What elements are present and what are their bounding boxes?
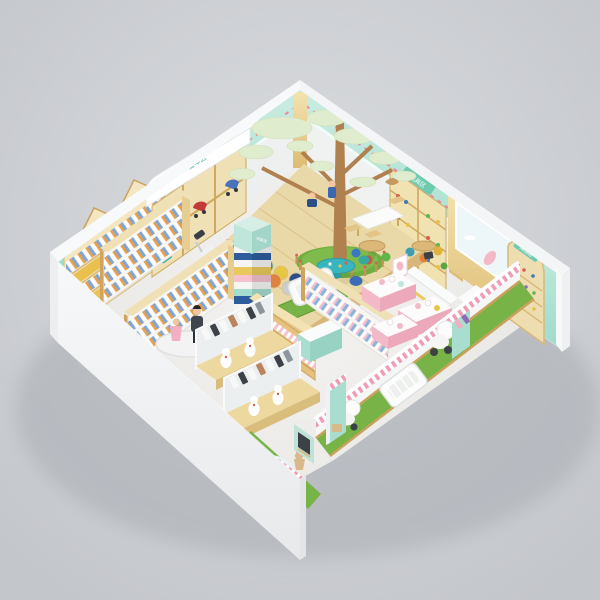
right-wall-stub bbox=[556, 266, 570, 352]
stool-green bbox=[382, 253, 391, 262]
left-corner-side bbox=[50, 252, 58, 343]
right-stub-outer bbox=[562, 268, 570, 352]
stool-blue bbox=[352, 249, 361, 258]
store-render: Isometric 3D render of a mother & baby k… bbox=[0, 0, 600, 600]
right-stub-front bbox=[556, 266, 562, 352]
wood-crate bbox=[332, 424, 342, 432]
stool-yellow bbox=[434, 247, 443, 256]
wall-end-face bbox=[300, 474, 306, 560]
counter-plant bbox=[441, 263, 448, 270]
screenshot-root: Isometric 3D render of a mother & baby k… bbox=[0, 0, 600, 600]
child-figure-standing bbox=[328, 181, 336, 199]
